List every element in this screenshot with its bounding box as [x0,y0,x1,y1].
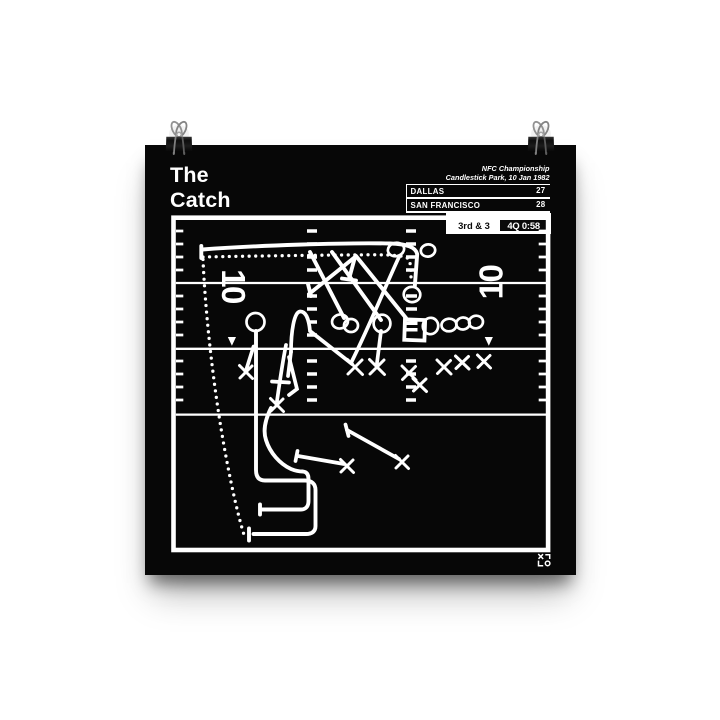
svg-text:10: 10 [215,269,252,303]
svg-text:10: 10 [473,266,510,300]
